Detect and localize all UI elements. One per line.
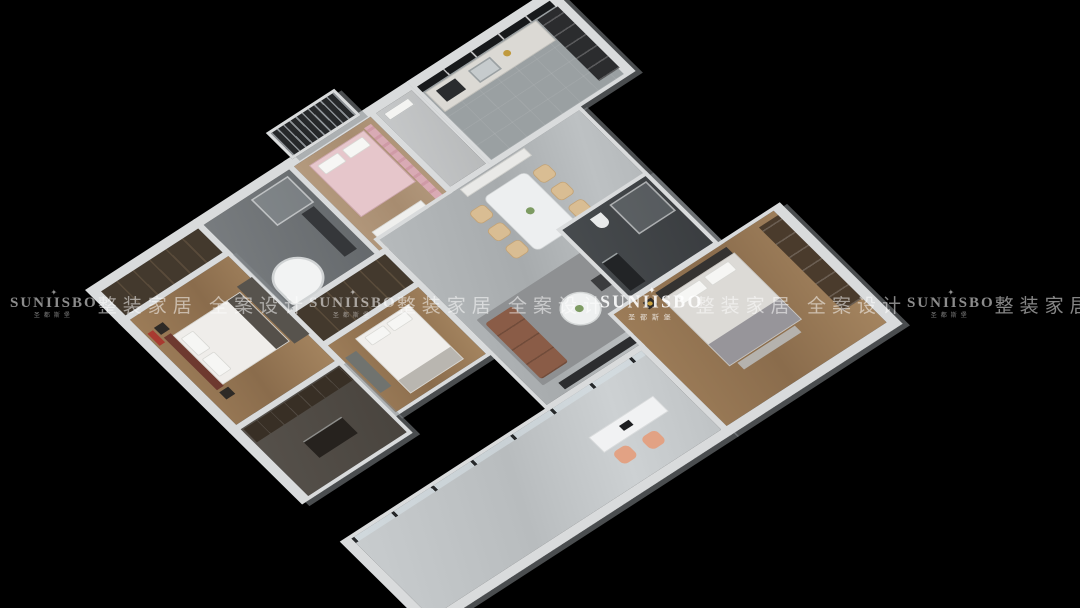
cooktop <box>436 78 466 101</box>
watermark-slogan: 整装家居 全案设计 <box>995 291 1080 318</box>
balcony-chair <box>640 429 667 451</box>
nightstand <box>643 298 658 310</box>
kitchen-sink <box>468 57 502 83</box>
crest-icon: ✦ <box>947 289 954 296</box>
kitchen-counter <box>425 21 556 112</box>
brand-logo-subtext: 圣都斯堡 <box>34 313 74 319</box>
shower-enclosure <box>609 181 676 234</box>
lamp <box>646 301 653 307</box>
island-dresser <box>303 417 358 458</box>
brand-logo: ✦ SUNIISBO 圣都斯堡 <box>10 289 98 319</box>
bed-throw <box>398 347 462 393</box>
bed-3 <box>662 253 802 367</box>
balcony-chair <box>612 444 639 466</box>
brand-logo-subtext: 圣都斯堡 <box>931 313 971 319</box>
table-plant <box>573 304 585 314</box>
floorplan-3d-render <box>85 0 934 608</box>
gold-dish <box>502 49 513 58</box>
crest-icon: ✦ <box>51 289 58 296</box>
centerpiece-plant <box>524 206 536 216</box>
laptop <box>619 420 634 431</box>
brand-logo-text: SUNIISBO <box>10 296 98 311</box>
nightstand <box>219 387 235 400</box>
render-canvas: ✦ SUNIISBO 圣都斯堡 整装家居 全案设计 ✦ SUNIISBO 圣都斯… <box>0 0 1080 608</box>
entry-door <box>383 98 414 121</box>
toilet <box>590 212 612 230</box>
